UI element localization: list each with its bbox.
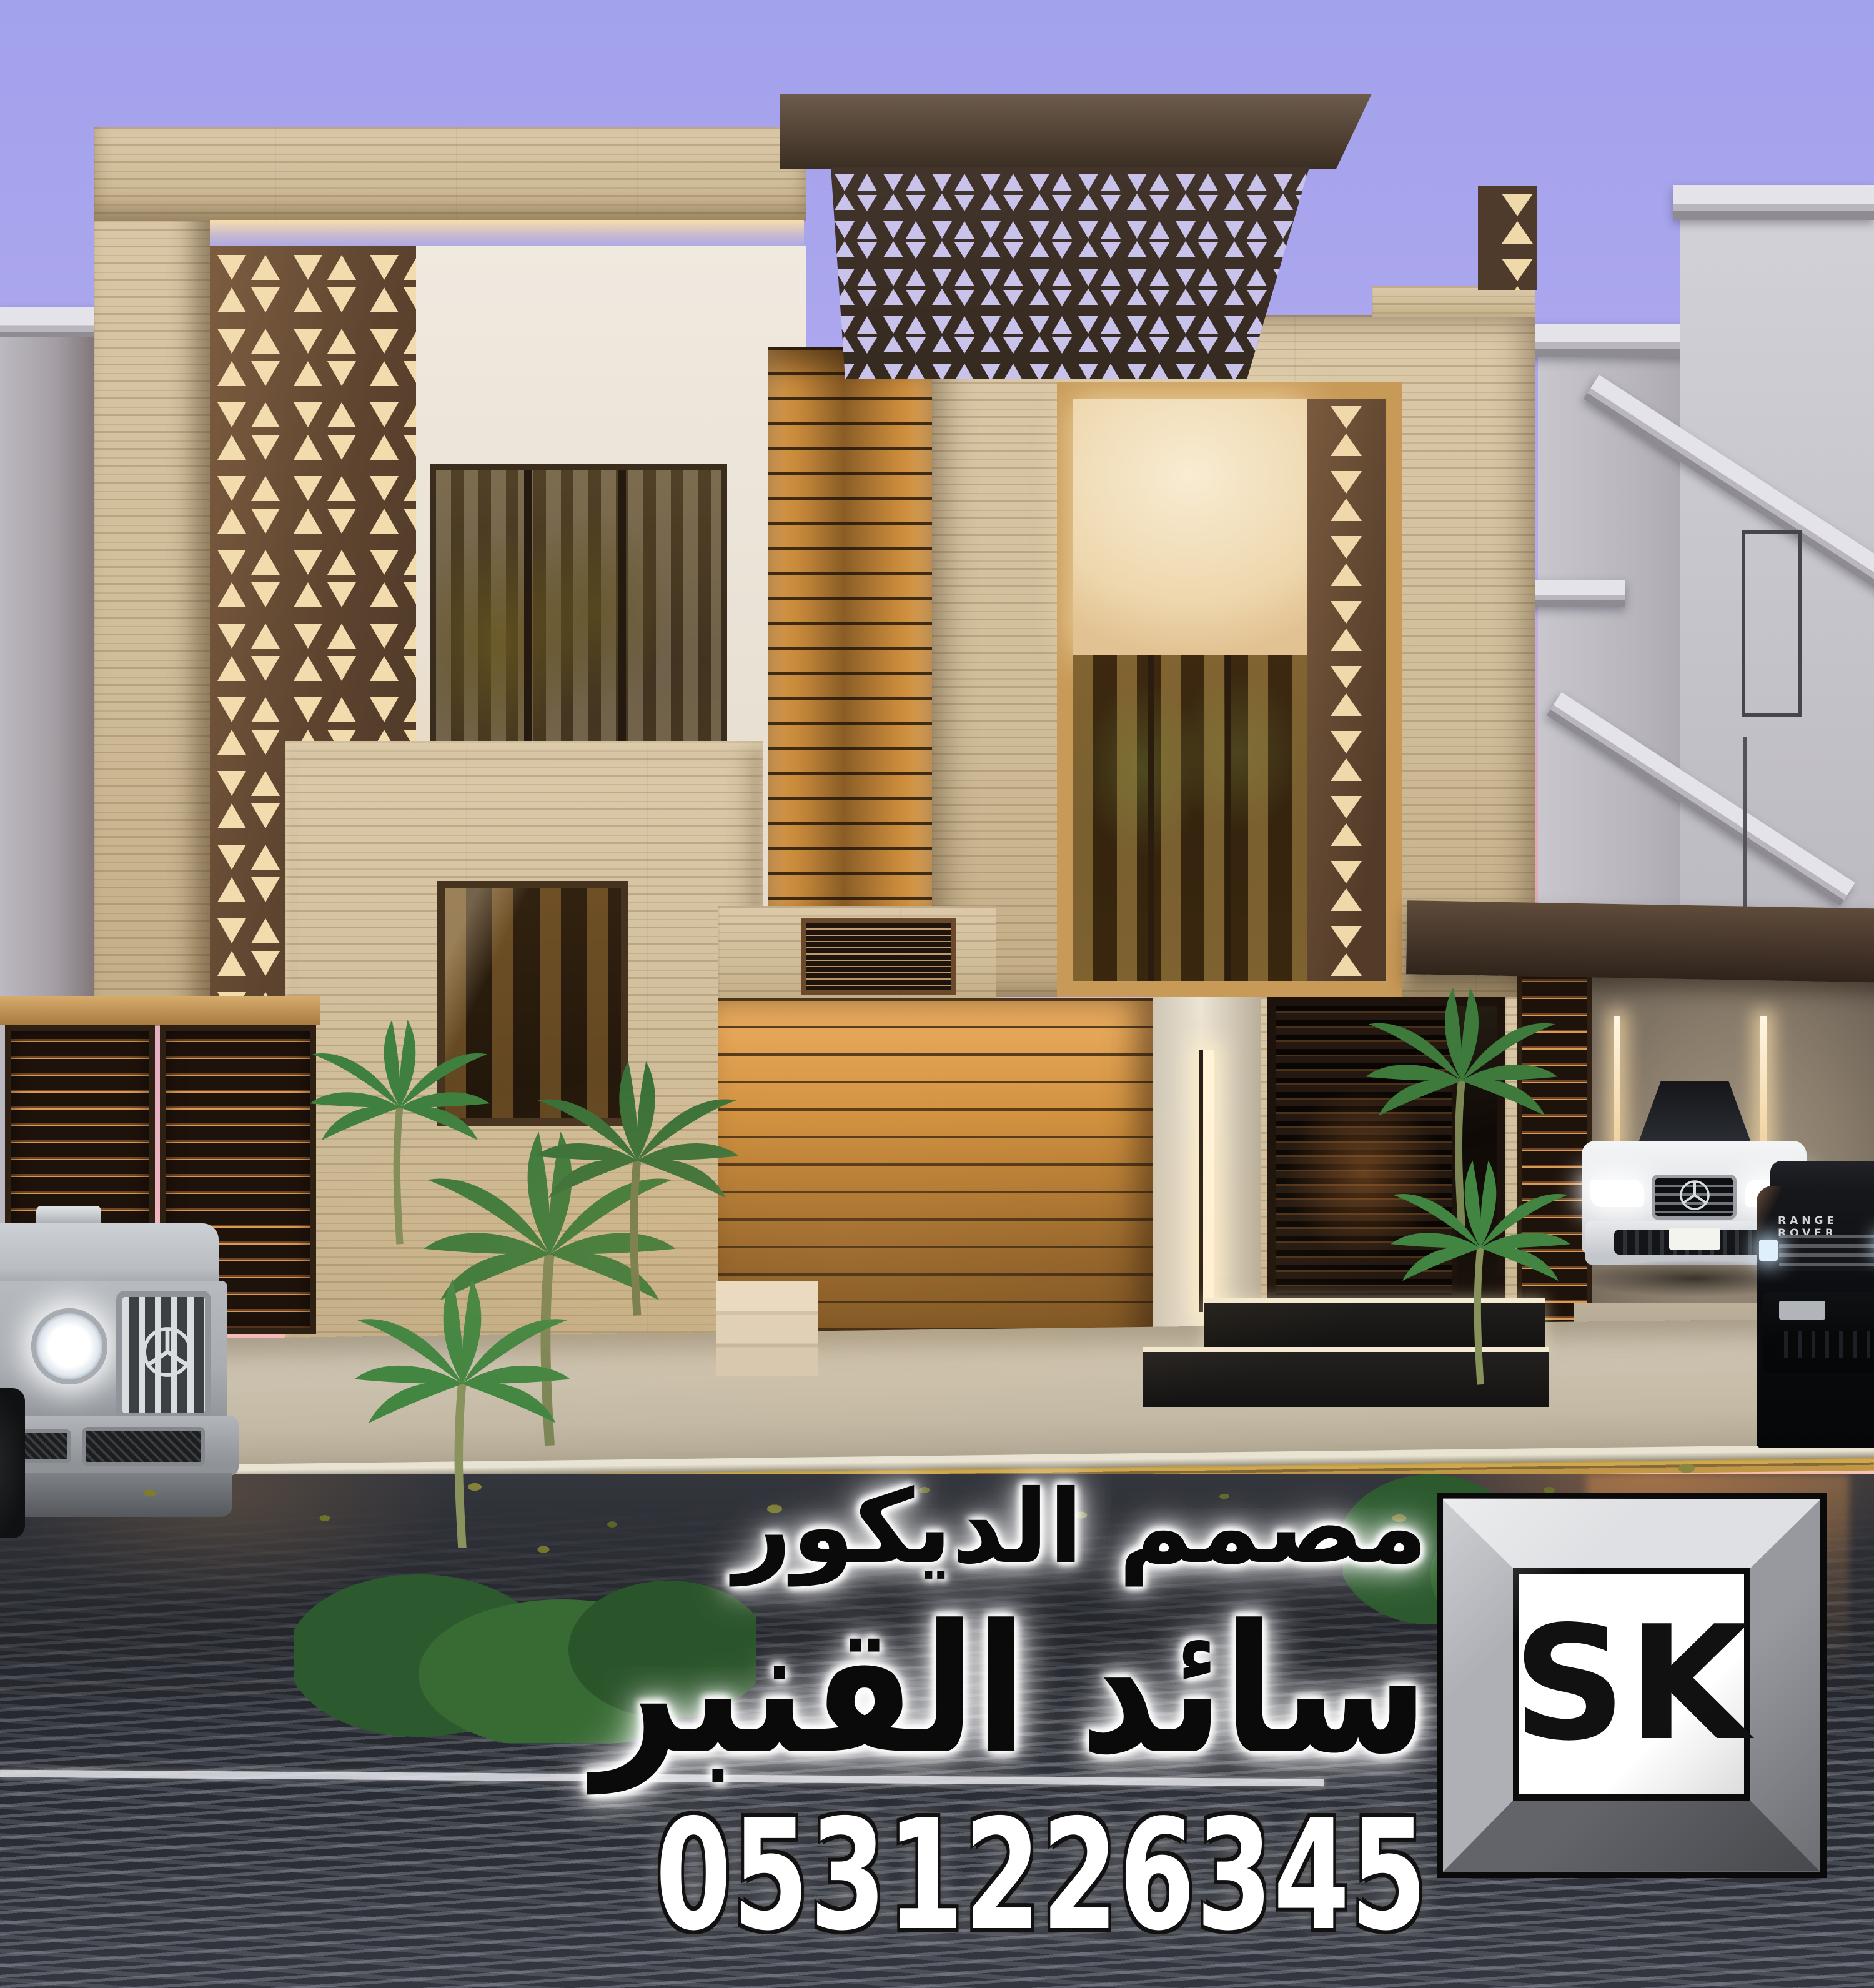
travertine-top-band bbox=[94, 127, 806, 221]
backlit-panel bbox=[1073, 399, 1307, 655]
sk-logo: SK bbox=[1437, 1493, 1827, 1878]
cove-light-glow bbox=[210, 220, 804, 249]
travertine-tower-cap bbox=[1372, 286, 1535, 317]
entry-door bbox=[1267, 997, 1505, 1303]
perforated-canopy-soffit bbox=[831, 167, 1309, 379]
door-sidelight-glass bbox=[1452, 1006, 1497, 1295]
windshield bbox=[1618, 1081, 1772, 1148]
headlight bbox=[1590, 1180, 1644, 1207]
logo-monogram: SK bbox=[1513, 1606, 1751, 1763]
villa-exterior-render: RANGE ROVER bbox=[0, 0, 1874, 1988]
door-leaf bbox=[1276, 1006, 1452, 1295]
watermark-phone: 0531226345 bbox=[655, 1793, 1428, 1959]
license-plate bbox=[1779, 1301, 1825, 1320]
right-neighbor-cornice-tall bbox=[1673, 185, 1874, 220]
louvered-pivot-panel bbox=[1517, 966, 1592, 1341]
designer-watermark: مصمم الديكور سائد القنبر 0531226345 bbox=[355, 1468, 1428, 1959]
headlight bbox=[1759, 1240, 1778, 1261]
perforated-triangle-strip bbox=[1307, 399, 1386, 981]
logo-metal-frame: SK bbox=[1443, 1499, 1820, 1872]
backlit-wood-column bbox=[768, 347, 932, 910]
entry-step-upper bbox=[1204, 1298, 1545, 1352]
gate-top-beam bbox=[0, 996, 320, 1025]
logo-inner-square: SK bbox=[1513, 1568, 1750, 1801]
car-grille bbox=[1779, 1235, 1874, 1271]
watermark-profession: مصمم الديكور bbox=[355, 1468, 1428, 1587]
roof-canopy-fascia bbox=[780, 94, 1372, 169]
tall-curtained-window bbox=[1073, 655, 1307, 981]
neighbor-roof-door bbox=[1742, 530, 1802, 717]
watermark-name: سائد القنبر bbox=[593, 1587, 1428, 1793]
lower-left-window bbox=[437, 881, 628, 1126]
recessed-window-bay bbox=[1057, 382, 1402, 997]
license-plate bbox=[1669, 1228, 1720, 1250]
perforated-panel-small bbox=[1478, 186, 1537, 290]
recess-interior bbox=[1073, 399, 1307, 981]
car-hood bbox=[0, 1223, 219, 1288]
mercedes-star-icon bbox=[1679, 1180, 1710, 1211]
vertical-led-light bbox=[1199, 1050, 1214, 1312]
travertine-left-column bbox=[94, 127, 210, 1026]
bumper-intake bbox=[1774, 1331, 1874, 1358]
slatted-vent-window bbox=[801, 918, 956, 995]
left-neighbor-cornice bbox=[0, 307, 104, 340]
carport-canopy bbox=[1406, 900, 1874, 983]
